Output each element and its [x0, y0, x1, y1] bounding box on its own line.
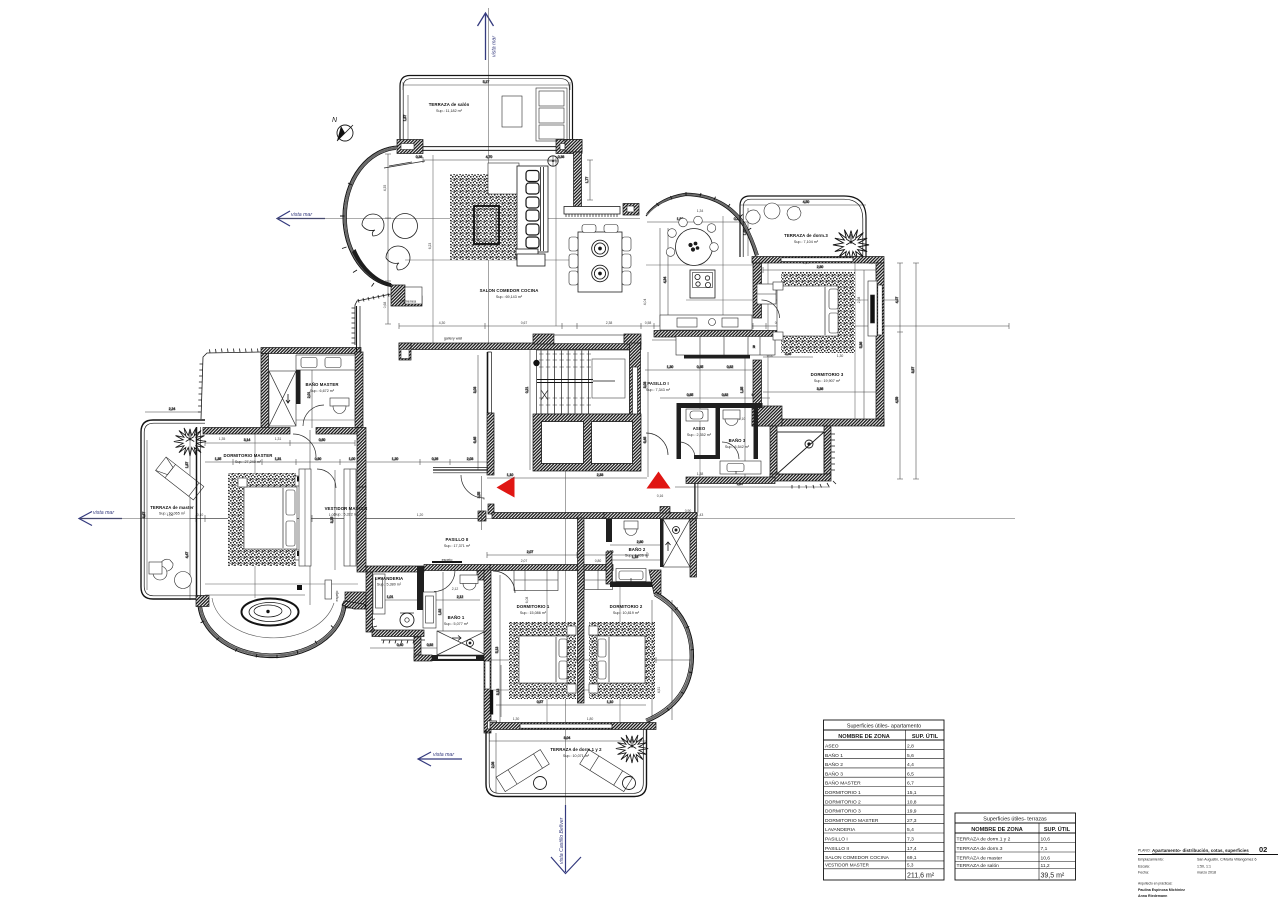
svg-text:Sup.: 10,065 m²: Sup.: 10,065 m²	[159, 512, 186, 516]
svg-text:vista mar: vista mar	[433, 752, 454, 758]
svg-text:2,08: 2,08	[857, 297, 861, 304]
svg-text:Apartamento- distribución, cot: Apartamento- distribución, cotas, superf…	[1152, 848, 1249, 853]
svg-text:3,14: 3,14	[244, 438, 251, 442]
svg-text:5,6: 5,6	[907, 753, 914, 759]
svg-text:Sup.: 7,343 m²: Sup.: 7,343 m²	[646, 388, 671, 392]
svg-text:6,46: 6,46	[473, 437, 477, 444]
svg-text:PASILLO I: PASILLO I	[647, 381, 669, 386]
svg-text:0,82: 0,82	[727, 365, 734, 369]
svg-text:LAVANDERIA: LAVANDERIA	[375, 576, 404, 581]
svg-text:1,30: 1,30	[513, 717, 520, 721]
svg-text:1,10: 1,10	[607, 700, 614, 704]
svg-text:6,23: 6,23	[428, 243, 432, 250]
svg-text:2,38: 2,38	[606, 321, 613, 325]
svg-text:Sup.: 6,542 m²: Sup.: 6,542 m²	[725, 445, 750, 449]
svg-text:4,4: 4,4	[907, 762, 914, 768]
svg-text:2,07: 2,07	[527, 550, 534, 554]
svg-text:TERRAZA de dorm.1 y 2: TERRAZA de dorm.1 y 2	[550, 747, 602, 752]
svg-text:0,16: 0,16	[657, 494, 664, 498]
svg-text:DORMITORIO MASTER: DORMITORIO MASTER	[224, 453, 274, 458]
svg-text:1,31: 1,31	[275, 457, 282, 461]
svg-text:3,55: 3,55	[477, 492, 481, 499]
svg-text:Sup.: 10,071 m²: Sup.: 10,071 m²	[563, 754, 590, 758]
svg-text:1,35: 1,35	[219, 437, 226, 441]
svg-text:1,20: 1,20	[392, 457, 399, 461]
svg-text:1,30: 1,30	[837, 354, 844, 358]
svg-text:San Augustin, C/Marta Villangó: San Augustin, C/Marta Villangómez 6	[1197, 858, 1256, 862]
svg-text:vista Castillo Bellver: vista Castillo Bellver	[559, 817, 565, 864]
svg-text:1,38: 1,38	[697, 472, 704, 476]
svg-text:2,80: 2,80	[817, 265, 824, 269]
svg-text:TERRAZA de master: TERRAZA de master	[957, 856, 1003, 862]
svg-text:Superficies útiles- terrazas: Superficies útiles- terrazas	[983, 817, 1047, 823]
svg-text:1:50, 1:1: 1:50, 1:1	[1197, 865, 1211, 869]
svg-text:Sup.: 15,086 m²: Sup.: 15,086 m²	[520, 611, 547, 615]
svg-text:Fecha:: Fecha:	[1138, 871, 1149, 875]
svg-text:4,51: 4,51	[657, 687, 661, 694]
svg-text:Sup.: 5,077 m²: Sup.: 5,077 m²	[444, 622, 469, 626]
svg-text:4,34: 4,34	[663, 277, 667, 284]
svg-text:2,07: 2,07	[521, 559, 528, 563]
svg-text:10,6: 10,6	[1041, 856, 1051, 862]
svg-text:1,35: 1,35	[215, 457, 222, 461]
svg-text:chimenea: chimenea	[400, 300, 417, 304]
svg-text:NOMBRE DE ZONA: NOMBRE DE ZONA	[971, 827, 1023, 833]
svg-text:NOMBRE DE ZONA: NOMBRE DE ZONA	[838, 734, 890, 740]
svg-text:Sup.: 5,322 m²: Sup.: 5,322 m²	[334, 513, 359, 517]
svg-text:DORMITORIO 3: DORMITORIO 3	[811, 372, 844, 377]
svg-text:2,08: 2,08	[491, 762, 495, 769]
svg-text:VESTIDOR MASTER: VESTIDOR MASTER	[325, 506, 369, 511]
svg-text:1,77: 1,77	[585, 177, 589, 184]
svg-text:LAVANDERIA: LAVANDERIA	[825, 827, 856, 833]
svg-text:VESTIDOR MASTER: VESTIDOR MASTER	[825, 862, 870, 867]
svg-text:69,1: 69,1	[907, 855, 917, 861]
svg-text:SUP. ÚTIL: SUP. ÚTIL	[1044, 826, 1071, 833]
svg-text:1,00: 1,00	[349, 457, 356, 461]
svg-text:PASILLO I: PASILLO I	[825, 837, 848, 843]
svg-text:17,4: 17,4	[907, 846, 917, 852]
svg-text:1,80: 1,80	[587, 717, 594, 721]
svg-text:2,12: 2,12	[457, 595, 464, 599]
svg-text:Emplazamiento:: Emplazamiento:	[1138, 858, 1164, 862]
svg-text:marzo 2018: marzo 2018	[1197, 871, 1216, 875]
svg-text:SUP. ÚTIL: SUP. ÚTIL	[912, 733, 939, 740]
svg-text:Sup.: 5,380 m²: Sup.: 5,380 m²	[377, 583, 402, 587]
svg-text:1,30: 1,30	[667, 365, 674, 369]
svg-text:DORMITORIO MASTER: DORMITORIO MASTER	[825, 818, 879, 824]
svg-text:Escala:: Escala:	[1138, 865, 1150, 869]
svg-text:1,20: 1,20	[417, 513, 424, 517]
svg-text:0,92: 0,92	[427, 643, 434, 647]
svg-text:0,58: 0,58	[645, 321, 652, 325]
svg-text:4,47: 4,47	[185, 552, 189, 559]
svg-text:8,04: 8,04	[564, 736, 571, 740]
svg-text:DORMITORIO 2: DORMITORIO 2	[825, 799, 861, 805]
svg-text:0,85: 0,85	[687, 393, 694, 397]
svg-text:vista mar: vista mar	[93, 510, 114, 516]
svg-text:Sup.: 19,907 m²: Sup.: 19,907 m²	[814, 379, 841, 383]
svg-text:BAÑO 1: BAÑO 1	[825, 752, 843, 759]
svg-text:TERRAZA de master: TERRAZA de master	[150, 505, 194, 510]
svg-text:1,10: 1,10	[507, 473, 514, 477]
svg-text:DORMITORIO 1: DORMITORIO 1	[825, 790, 861, 796]
svg-text:BAÑO MASTER: BAÑO MASTER	[305, 382, 339, 387]
svg-text:espejo: espejo	[442, 558, 453, 562]
svg-text:5,4: 5,4	[907, 827, 914, 833]
svg-text:0,10: 0,10	[197, 513, 204, 517]
svg-text:Paulina Espinosa Michiniez: Paulina Espinosa Michiniez	[1138, 888, 1185, 892]
svg-text:3,36: 3,36	[817, 387, 824, 391]
svg-text:PASILLO II: PASILLO II	[446, 537, 469, 542]
svg-text:TERRAZA de salón: TERRAZA de salón	[429, 102, 470, 107]
svg-text:0,67: 0,67	[521, 321, 528, 325]
svg-text:TERRAZA de dorm.3: TERRAZA de dorm.3	[784, 233, 828, 238]
svg-text:5,36: 5,36	[859, 342, 863, 349]
svg-text:7,3: 7,3	[907, 837, 914, 843]
svg-text:DORMITORIO 2: DORMITORIO 2	[610, 604, 643, 609]
svg-text:Sup.: 7,104 m²: Sup.: 7,104 m²	[794, 240, 819, 244]
svg-text:0,82: 0,82	[722, 393, 729, 397]
svg-text:gallery wall: gallery wall	[444, 337, 462, 341]
svg-text:3,13: 3,13	[496, 689, 500, 696]
svg-text:BAÑO 3: BAÑO 3	[729, 438, 746, 443]
svg-text:2,24: 2,24	[169, 407, 176, 411]
svg-text:0,26: 0,26	[432, 457, 439, 461]
svg-text:0,38: 0,38	[416, 155, 423, 159]
svg-text:6,08: 6,08	[525, 597, 529, 604]
svg-text:1,31: 1,31	[275, 437, 282, 441]
svg-text:Sup.: 27,240 m²: Sup.: 27,240 m²	[235, 460, 262, 464]
svg-text:Sup.: 10,819 m²: Sup.: 10,819 m²	[613, 611, 640, 615]
svg-text:1,35: 1,35	[740, 387, 744, 394]
svg-text:8,97: 8,97	[911, 367, 915, 374]
svg-text:27,3: 27,3	[907, 818, 917, 824]
svg-text:0,57: 0,57	[537, 700, 544, 704]
svg-text:19,9: 19,9	[907, 809, 917, 815]
svg-text:Arquitecto en prácticas:: Arquitecto en prácticas:	[1138, 882, 1173, 886]
svg-text:0,68: 0,68	[383, 302, 387, 309]
svg-text:10,6: 10,6	[1041, 837, 1051, 843]
svg-text:1,87: 1,87	[185, 462, 189, 469]
svg-text:4,70: 4,70	[486, 155, 493, 159]
svg-text:Sup.: 2,352 m²: Sup.: 2,352 m²	[687, 433, 712, 437]
svg-text:Sup.: 17,371 m²: Sup.: 17,371 m²	[444, 544, 471, 548]
svg-text:TERRAZA de dorm.1 y 2: TERRAZA de dorm.1 y 2	[957, 837, 1011, 843]
svg-text:Superficies útiles- apartament: Superficies útiles- apartamento	[847, 724, 921, 730]
svg-text:2,12: 2,12	[452, 587, 459, 591]
svg-text:5,27: 5,27	[483, 80, 490, 84]
svg-text:BAÑO 2: BAÑO 2	[629, 547, 646, 552]
svg-text:1,01: 1,01	[387, 595, 394, 599]
svg-text:Sup.: 69,143 m²: Sup.: 69,143 m²	[496, 295, 523, 299]
svg-text:vista mar: vista mar	[291, 212, 312, 218]
svg-text:4,50: 4,50	[803, 200, 810, 204]
svg-text:BAÑO 1: BAÑO 1	[448, 615, 465, 620]
svg-text:10,8: 10,8	[907, 799, 917, 805]
svg-text:Sup.: 6,672 m²: Sup.: 6,672 m²	[310, 389, 335, 393]
svg-text:ASEO: ASEO	[825, 744, 839, 750]
svg-text:DORMITORIO 1: DORMITORIO 1	[517, 604, 550, 609]
svg-text:0,80: 0,80	[595, 559, 602, 563]
svg-text:2,03: 2,03	[467, 457, 474, 461]
svg-text:TERRAZA de salón: TERRAZA de salón	[957, 863, 1000, 869]
svg-text:3,25: 3,25	[330, 517, 334, 524]
svg-text:7,1: 7,1	[1041, 846, 1048, 852]
svg-text:Sup.: 4,436 m²: Sup.: 4,436 m²	[625, 554, 650, 558]
svg-text:1,92: 1,92	[438, 609, 442, 616]
svg-text:1,43: 1,43	[697, 513, 704, 517]
svg-text:1,87: 1,87	[403, 115, 407, 122]
svg-text:211,6 m²: 211,6 m²	[907, 873, 935, 880]
svg-text:0,40: 0,40	[397, 643, 404, 647]
svg-text:espejo: espejo	[335, 591, 339, 602]
svg-text:Anna Riedemann: Anna Riedemann	[1138, 894, 1167, 898]
svg-text:BAÑO MASTER: BAÑO MASTER	[825, 780, 861, 787]
svg-text:SALON COMEDOR COCINA: SALON COMEDOR COCINA	[480, 288, 539, 293]
svg-text:5,13: 5,13	[495, 647, 499, 654]
svg-text:0,21: 0,21	[525, 387, 529, 394]
svg-text:SALON COMEDOR COCINA: SALON COMEDOR COCINA	[825, 855, 890, 861]
svg-text:vista mar: vista mar	[492, 36, 498, 57]
svg-text:TERRAZA de dorm.3: TERRAZA de dorm.3	[957, 846, 1003, 852]
svg-text:2,8: 2,8	[907, 744, 914, 750]
svg-text:4,30: 4,30	[439, 321, 446, 325]
svg-text:0,90: 0,90	[315, 457, 322, 461]
svg-text:6,7: 6,7	[907, 781, 914, 787]
svg-text:PLANO:: PLANO:	[1138, 849, 1150, 853]
svg-text:39,5 m²: 39,5 m²	[1041, 873, 1065, 880]
svg-text:Sup.: 11,182 m²: Sup.: 11,182 m²	[436, 109, 463, 113]
svg-text:5,3: 5,3	[907, 862, 914, 867]
svg-text:DORMITORIO 3: DORMITORIO 3	[825, 809, 861, 815]
svg-text:6,46: 6,46	[643, 437, 647, 444]
svg-text:3,03: 3,03	[473, 387, 477, 394]
svg-text:4,59: 4,59	[895, 397, 899, 404]
svg-text:15,1: 15,1	[907, 790, 917, 796]
svg-text:4,35: 4,35	[383, 185, 387, 192]
svg-text:0,60: 0,60	[319, 438, 326, 442]
svg-text:BAÑO 2: BAÑO 2	[825, 761, 843, 768]
svg-text:6,5: 6,5	[907, 771, 914, 777]
svg-text:PASILLO II: PASILLO II	[825, 846, 849, 852]
svg-text:2,33: 2,33	[597, 473, 604, 477]
svg-text:4,04: 4,04	[643, 299, 647, 306]
svg-text:0,38: 0,38	[558, 155, 565, 159]
svg-text:1,34: 1,34	[697, 209, 704, 213]
svg-text:BAÑO 3: BAÑO 3	[825, 770, 843, 777]
svg-text:02: 02	[1259, 845, 1267, 854]
svg-text:11,2: 11,2	[1041, 863, 1050, 869]
svg-text:ASEO: ASEO	[693, 426, 706, 431]
svg-text:2,80: 2,80	[637, 540, 644, 544]
